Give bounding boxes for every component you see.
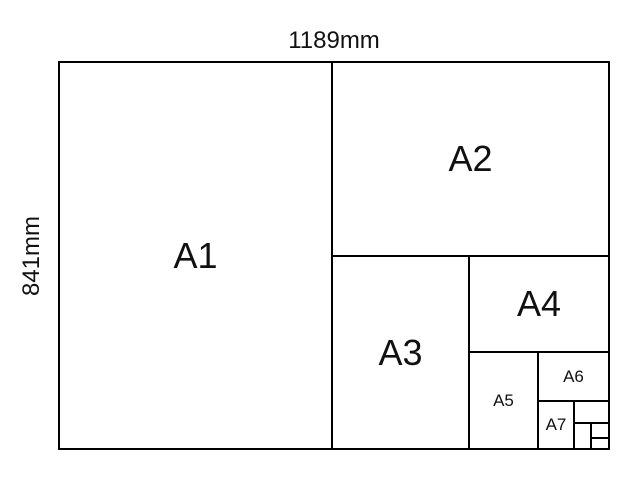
label-a2: A2 [448,138,492,180]
cell-a3: A3 [333,257,470,448]
cell-a5: A5 [470,353,539,448]
height-dimension-text: 841mm [18,215,46,295]
height-dimension-label: 841mm [10,63,54,448]
a7-group: A7 [539,402,608,448]
a0-sheet-outline: A1 A2 A3 A4 A5 A6 [58,61,610,450]
label-a4: A4 [517,283,561,325]
cell-a9 [575,424,592,448]
label-a7: A7 [546,415,567,435]
a9-group [575,424,608,448]
label-a1: A1 [173,235,217,277]
cell-a8 [575,402,608,424]
lower-right-quarter: A3 A4 A5 A6 [333,257,608,448]
cell-a2: A2 [333,63,608,257]
a10-group [592,424,608,448]
cell-a6: A6 [539,353,608,402]
right-half: A2 A3 A4 A5 A6 [333,63,608,448]
width-dimension-label: 1189mm [58,27,610,55]
cell-a11 [592,439,608,448]
a4-group: A4 A5 A6 A7 [470,257,608,448]
cell-a1: A1 [60,63,333,448]
a5-group: A5 A6 A7 [470,353,608,448]
cell-a4: A4 [470,257,608,353]
label-a3: A3 [378,332,422,374]
label-a5: A5 [493,391,514,411]
a6-group: A6 A7 [539,353,608,448]
cell-a7: A7 [539,402,575,448]
label-a6: A6 [563,367,584,387]
a8-group [575,402,608,448]
cell-a10 [592,424,608,439]
